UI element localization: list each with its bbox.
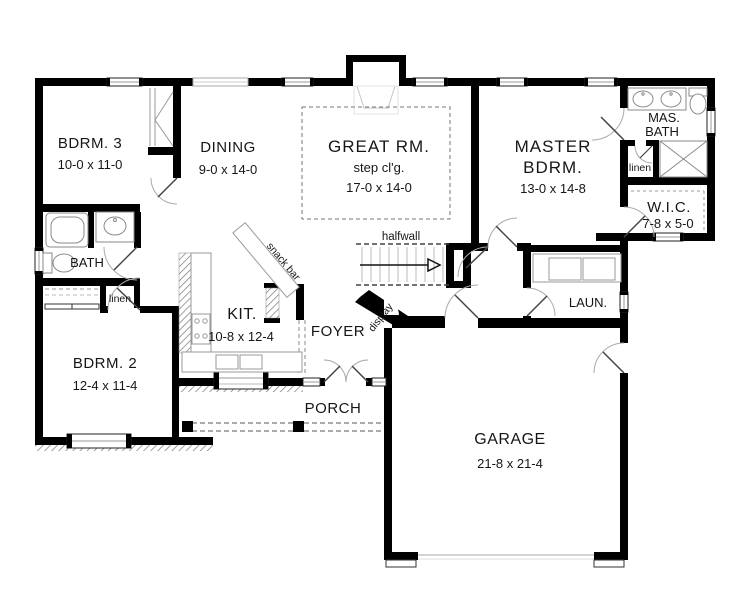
room-label-great-rm: GREAT RM. <box>328 137 430 156</box>
shower-icon <box>660 141 707 177</box>
window-master-sidewall <box>707 108 715 136</box>
room-dims-kitchen: 10-8 x 12-4 <box>208 329 274 344</box>
label-linen-hall: linen <box>109 293 131 305</box>
room-label-master-line2: BDRM. <box>523 158 583 177</box>
floor-plan: BDRM. 3 10-0 x 11-0 DINING 9-0 x 14-0 GR… <box>0 0 750 600</box>
floor-plan-drawing: BDRM. 3 10-0 x 11-0 DINING 9-0 x 14-0 GR… <box>0 0 750 600</box>
dryer-icon <box>583 258 615 280</box>
kitchen-sink-icon <box>240 355 262 369</box>
room-label-porch: PORCH <box>305 400 362 417</box>
window-dining <box>193 78 248 86</box>
window-greatrm-left <box>282 78 313 86</box>
bdrm3-closet <box>150 88 173 146</box>
window-kitchen-bay <box>214 371 268 389</box>
toilet-tank-icon <box>43 253 52 273</box>
window-bdrm3 <box>107 78 142 86</box>
window-master-right <box>585 78 617 86</box>
label-linen-master: linen <box>629 162 651 174</box>
room-label-laundry: LAUN. <box>569 295 607 310</box>
washer-icon <box>549 258 581 280</box>
room-dims-bdrm2: 12-4 x 11-4 <box>73 378 138 393</box>
toilet-icon <box>690 94 706 114</box>
room-dims-master: 13-0 x 14-8 <box>520 181 586 196</box>
room-note-great-rm: step cl'g. <box>354 160 405 175</box>
window-foyer-right <box>372 378 386 386</box>
window-greatrm-right <box>413 78 447 86</box>
room-label-wic: W.I.C. <box>647 199 691 216</box>
kitchen-sink-icon <box>216 355 238 369</box>
window-laundry <box>620 292 628 312</box>
room-label-kitchen: KIT. <box>227 306 257 323</box>
room-label-master-line1: MASTER <box>515 137 592 156</box>
room-dims-bdrm3: 10-0 x 11-0 <box>58 157 123 172</box>
porch-edge <box>182 421 384 432</box>
room-label-dining: DINING <box>200 139 256 156</box>
room-label-foyer: FOYER <box>311 323 365 340</box>
room-label-bdrm2: BDRM. 2 <box>73 355 137 372</box>
laundry-fixtures <box>533 254 621 282</box>
garage-door <box>386 555 624 567</box>
room-label-bdrm3: BDRM. 3 <box>58 135 122 152</box>
window-bath-left-wall <box>35 248 43 274</box>
room-dims-wic: 7-8 x 5-0 <box>642 216 693 231</box>
room-label-bath: BATH <box>70 255 104 270</box>
bdrm2-closet <box>45 289 100 309</box>
room-dims-great-rm: 17-0 x 14-0 <box>346 180 412 195</box>
window-wic <box>653 233 683 241</box>
room-label-mas-bath-line2: BATH <box>645 124 679 139</box>
room-dims-dining: 9-0 x 14-0 <box>199 162 258 177</box>
window-bdrm2-bay <box>67 434 131 448</box>
fireplace <box>346 55 406 114</box>
kitchen-fixtures <box>182 223 302 372</box>
stair-wall-block <box>446 243 471 288</box>
window-master-left <box>497 78 527 86</box>
interior-walls <box>35 86 715 328</box>
room-label-garage: GARAGE <box>474 431 545 448</box>
staircase <box>356 244 450 285</box>
room-dims-garage: 21-8 x 21-4 <box>477 456 543 471</box>
room-label-mas-bath-line1: MAS. <box>648 110 680 125</box>
annotation-halfwall: halfwall <box>382 231 420 243</box>
window-foyer-left <box>303 378 320 386</box>
